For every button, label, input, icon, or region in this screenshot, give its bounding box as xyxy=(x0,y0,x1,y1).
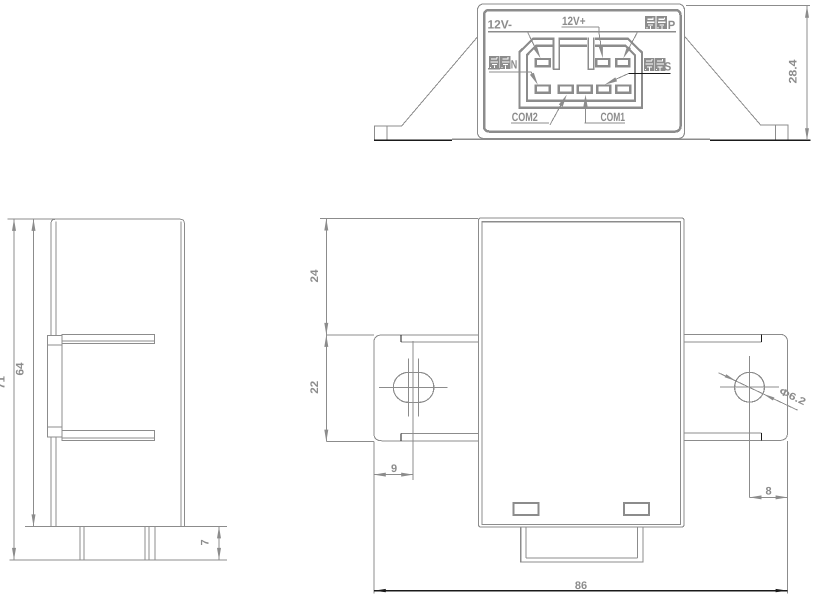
svg-text:12V-: 12V- xyxy=(488,18,513,32)
svg-text:COM1: COM1 xyxy=(601,110,626,124)
svg-text:12V+: 12V+ xyxy=(562,14,586,28)
svg-text:8: 8 xyxy=(765,486,771,498)
svg-text:86: 86 xyxy=(575,580,587,592)
svg-text:24: 24 xyxy=(309,269,321,283)
svg-text:28.4: 28.4 xyxy=(787,59,799,84)
svg-text:9: 9 xyxy=(391,463,397,475)
svg-text:N: N xyxy=(511,57,518,71)
svg-text:P: P xyxy=(668,18,676,32)
svg-text:7: 7 xyxy=(200,539,212,545)
svg-text:22: 22 xyxy=(309,381,321,394)
svg-text:S: S xyxy=(664,60,671,74)
svg-text:COM2: COM2 xyxy=(512,110,538,124)
svg-text:64: 64 xyxy=(15,362,27,376)
svg-text:71: 71 xyxy=(0,376,8,389)
